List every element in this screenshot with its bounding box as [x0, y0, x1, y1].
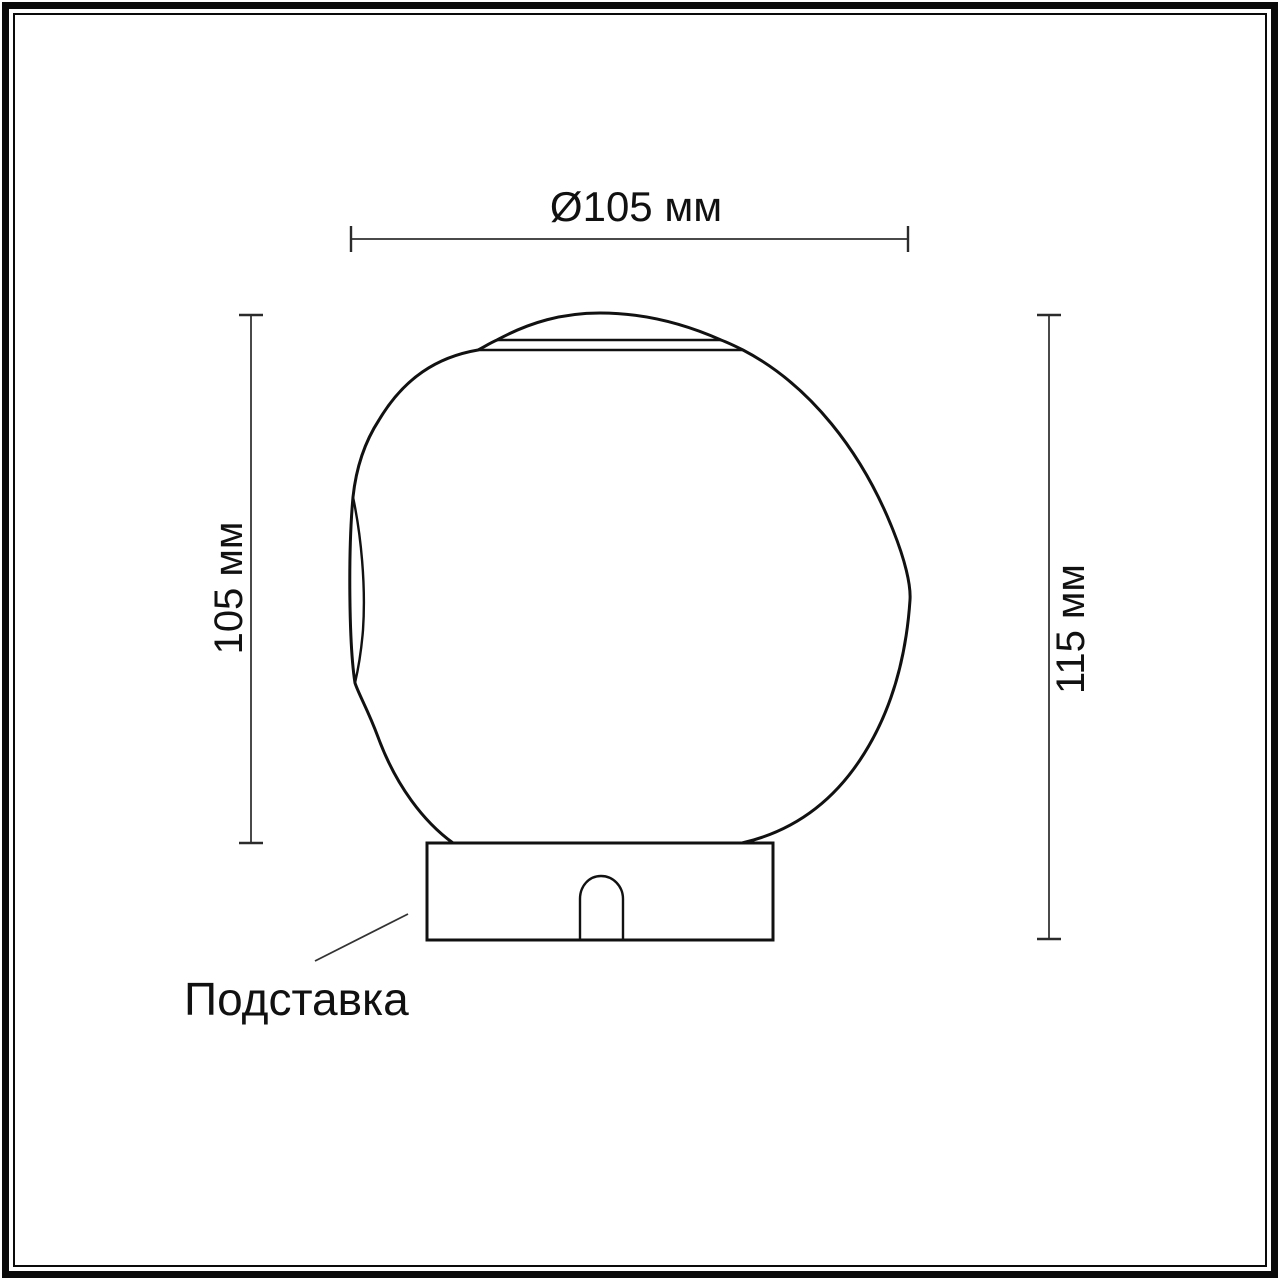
base-callout-leader-line: [315, 914, 408, 961]
glass-crease-line: [353, 497, 364, 683]
base-rect: [427, 843, 773, 940]
shade-height-dimension-label: 105 мм: [209, 522, 249, 655]
glass-shade-outline: [350, 313, 910, 843]
base-callout-label: Подставка: [184, 976, 409, 1022]
diameter-dimension-label: Ø105 мм: [550, 186, 722, 228]
drawing-canvas: Ø105 мм 105 мм 115 мм Подставка: [0, 0, 1280, 1280]
total-height-dimension-label: 115 мм: [1051, 564, 1091, 694]
